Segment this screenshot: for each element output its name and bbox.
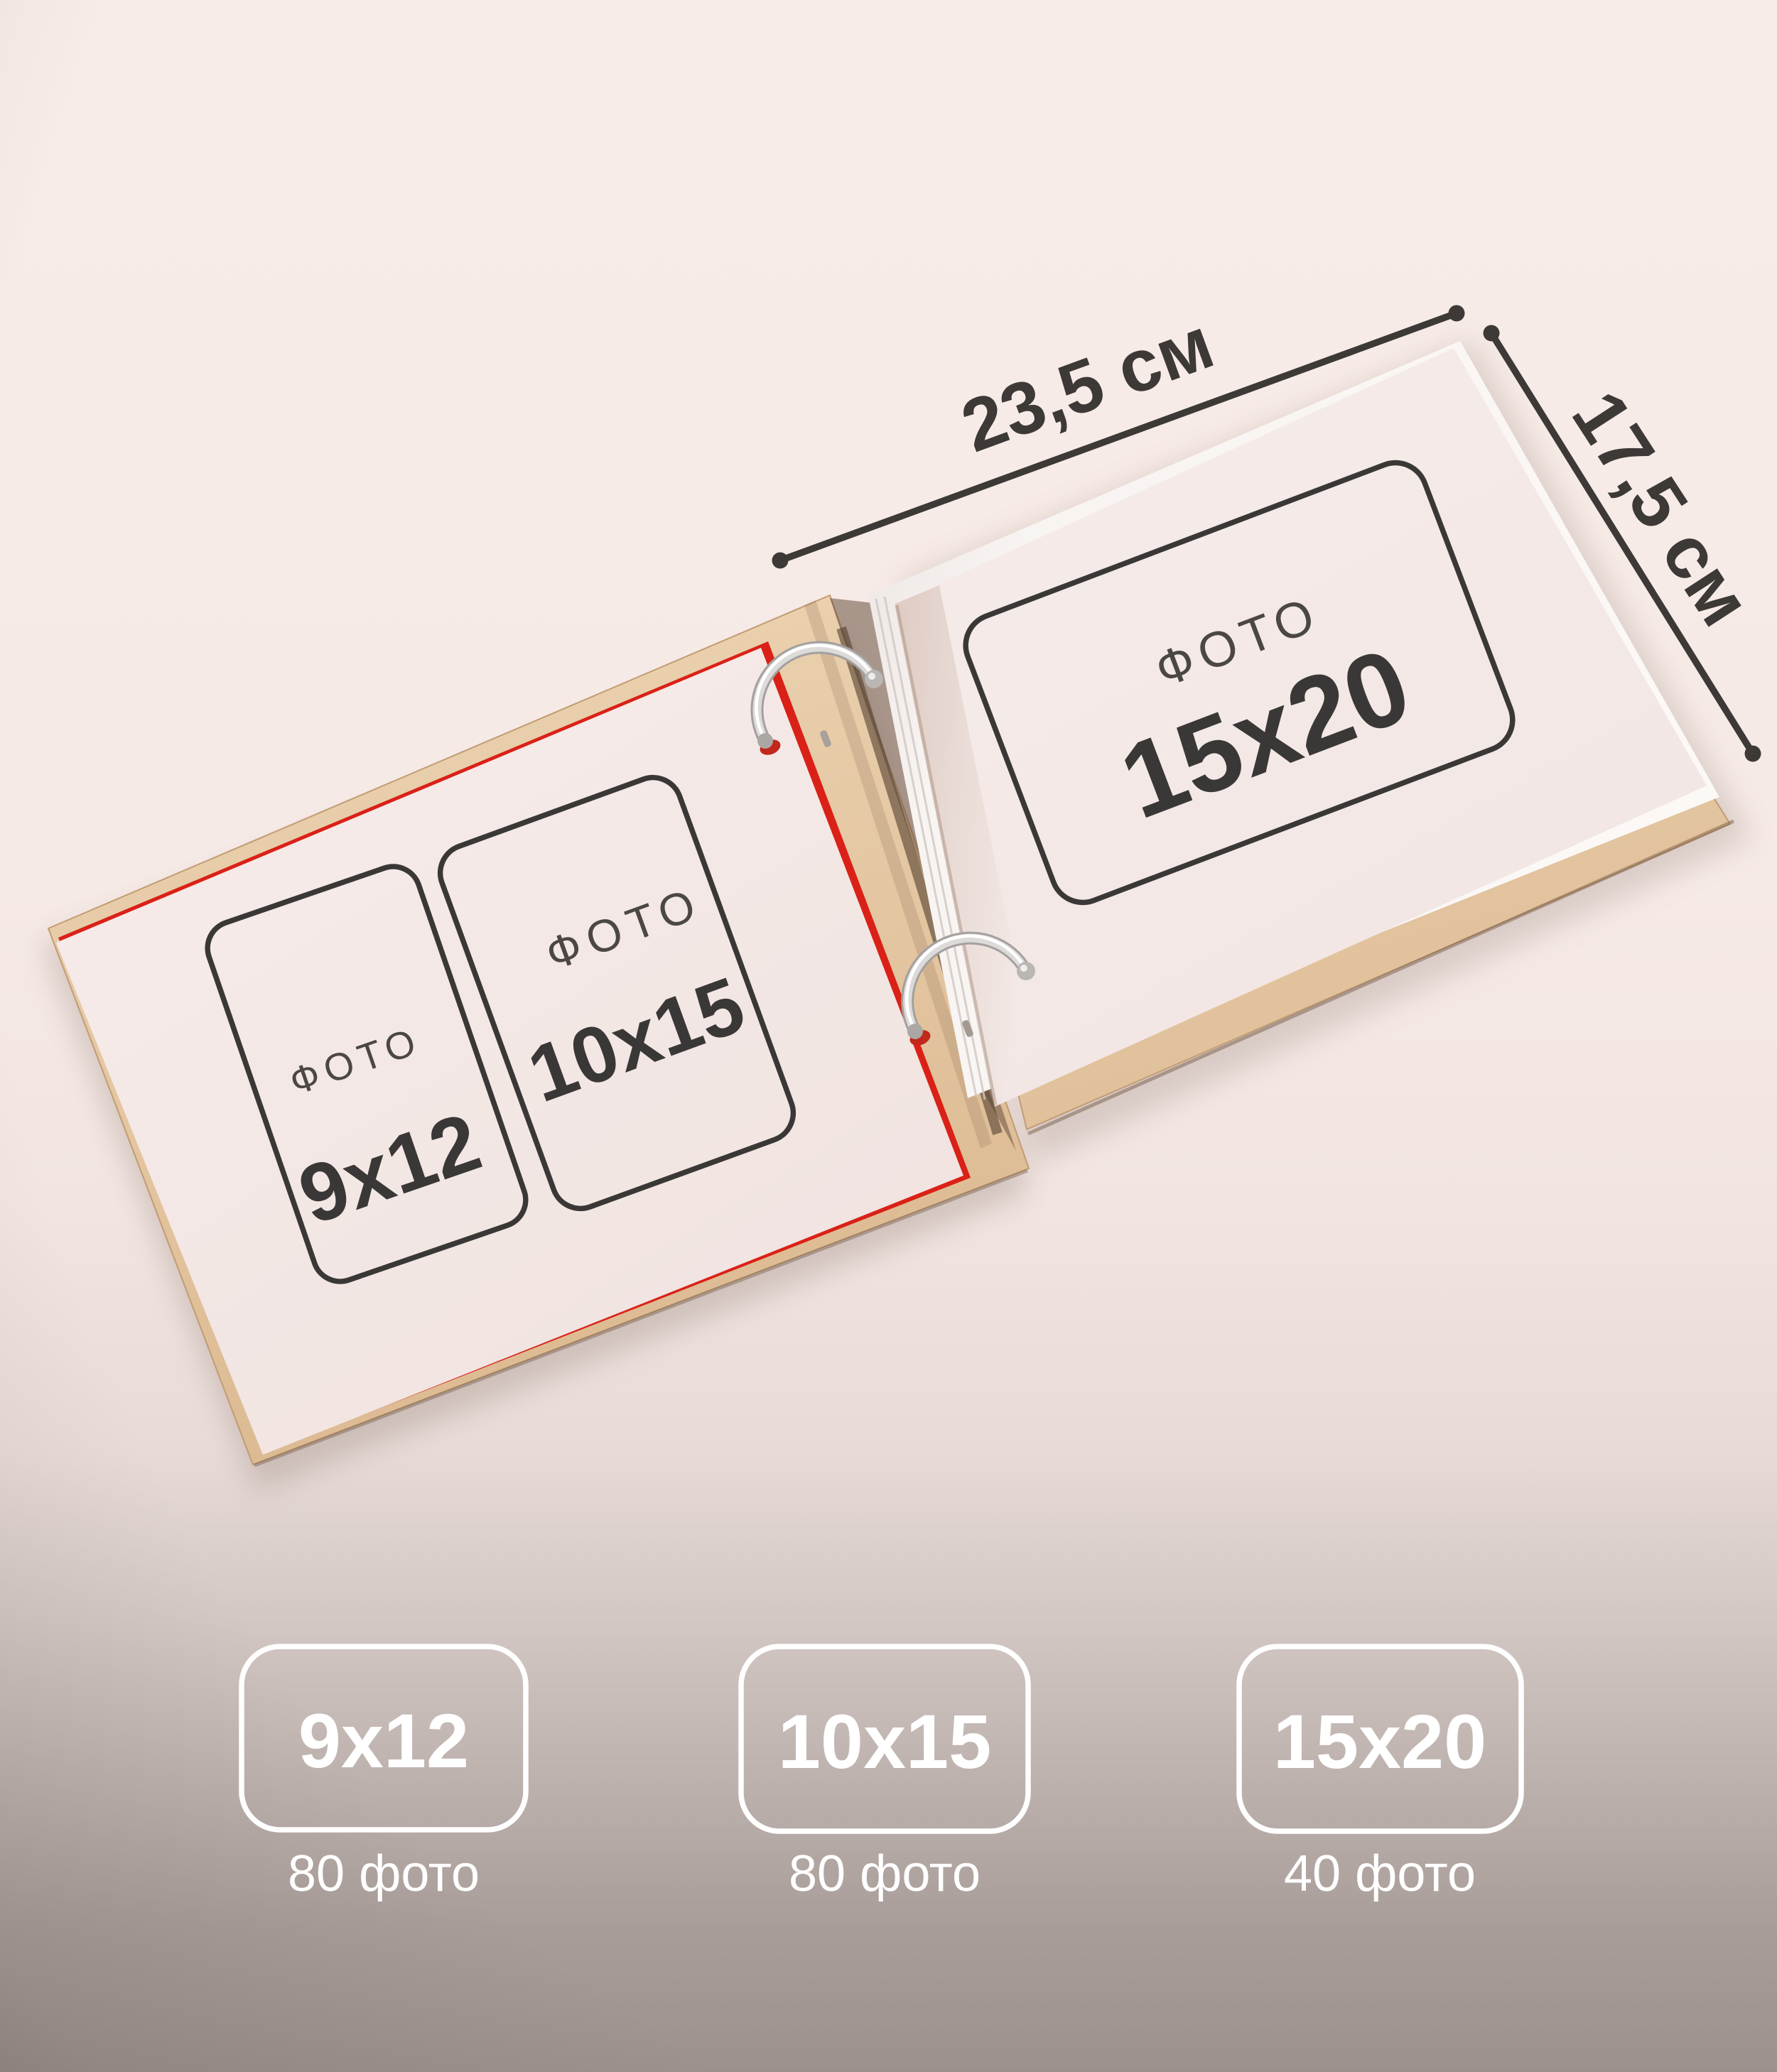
svg-text:10x15: 10x15: [778, 1698, 991, 1784]
svg-text:40 фото: 40 фото: [1284, 1845, 1476, 1902]
svg-text:80 фото: 80 фото: [789, 1845, 981, 1902]
svg-text:9x12: 9x12: [298, 1698, 469, 1784]
svg-text:15x20: 15x20: [1273, 1698, 1486, 1784]
svg-text:80 фото: 80 фото: [288, 1845, 480, 1902]
